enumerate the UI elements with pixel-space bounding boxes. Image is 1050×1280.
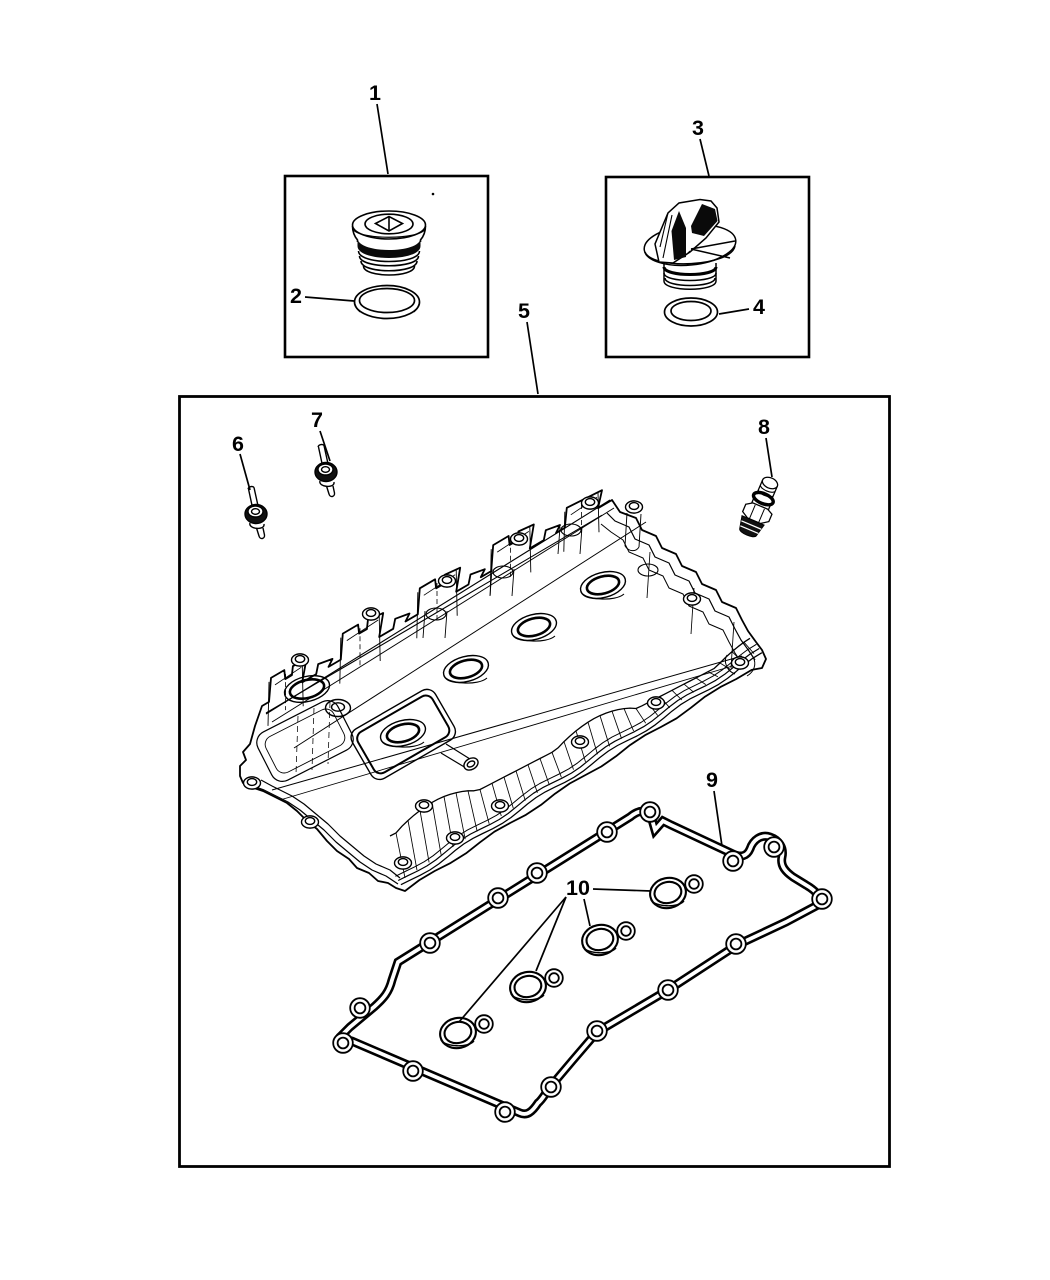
svg-text:10: 10 (566, 876, 590, 900)
svg-text:8: 8 (758, 415, 770, 439)
svg-text:3: 3 (692, 116, 704, 140)
svg-text:7: 7 (311, 408, 323, 432)
svg-text:4: 4 (753, 295, 765, 319)
svg-text:6: 6 (232, 432, 244, 456)
svg-text:2: 2 (290, 284, 302, 308)
svg-text:1: 1 (369, 81, 381, 105)
svg-text:5: 5 (518, 299, 530, 323)
svg-text:9: 9 (706, 768, 718, 792)
